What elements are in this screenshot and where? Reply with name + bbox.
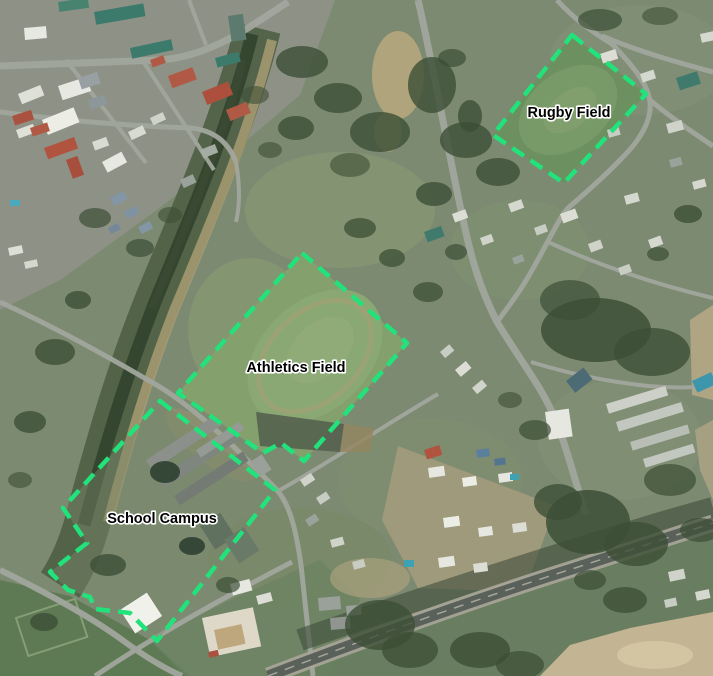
label-school-campus: School Campus [107,511,217,527]
label-athletics-field: Athletics Field [246,360,345,376]
label-rugby-field: Rugby Field [528,105,611,121]
aerial-imagery: Rugby FieldAthletics FieldSchool Campus [0,0,713,676]
map-canvas[interactable]: Rugby FieldAthletics FieldSchool Campus [0,0,713,676]
